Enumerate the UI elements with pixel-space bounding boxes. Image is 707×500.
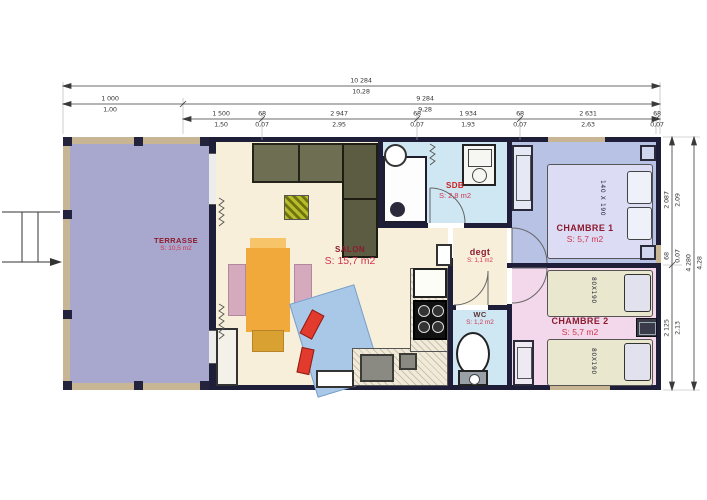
nightstand-top-line xyxy=(639,322,656,335)
toilet-flush-icon xyxy=(469,374,480,385)
burner-icon xyxy=(418,305,430,317)
shower-drain-icon xyxy=(390,202,405,217)
degt-label: degt S: 1,1 m2 xyxy=(445,247,515,266)
degt-area: S: 1,1 m2 xyxy=(445,258,515,266)
salon-window-bay xyxy=(316,370,354,388)
dim-seg-3: 2 947 2,95 xyxy=(330,111,348,128)
chambre1-name: CHAMBRE 1 xyxy=(530,223,640,234)
chambre1-area: S: 5,7 m2 xyxy=(530,234,640,245)
dim-right-seg-2: 68 0,07 xyxy=(664,249,681,263)
terrace-steps xyxy=(2,212,62,266)
sdb-label: SDB S: 2,8 m2 xyxy=(425,181,485,200)
chambre1-label: CHAMBRE 1 S: 5,7 m2 xyxy=(530,223,640,245)
dim-right-seg-3: 2 125 2,13 xyxy=(664,319,681,337)
sdb-area: S: 2,8 m2 xyxy=(425,191,485,200)
washing-machine xyxy=(462,144,496,186)
dining-chair-bottom xyxy=(252,330,284,352)
terrasse-post xyxy=(200,381,209,390)
doormat xyxy=(284,195,309,220)
chambre1-wardrobe xyxy=(512,145,533,211)
dim-steps-width: 1 000 1,00 xyxy=(101,96,119,113)
wc-area: S: 1,2 m2 xyxy=(450,319,510,327)
bed-double-pillow xyxy=(627,171,652,204)
terrasse-floor xyxy=(70,144,209,383)
sdb-name: SDB xyxy=(425,181,485,191)
bed-single-2-size: 80X190 xyxy=(590,348,597,375)
bed-single-2-pillow xyxy=(624,343,651,381)
burner-icon xyxy=(432,305,444,317)
dim-seg-1: 1 500 1,50 xyxy=(212,111,230,128)
wardrobe-shelf-line xyxy=(516,155,531,201)
dim-seg-6: 68 0,07 xyxy=(513,111,527,128)
burner-icon xyxy=(418,321,430,333)
burner-icon xyxy=(432,321,444,333)
terrasse-label: TERRASSE S: 10,5 m2 xyxy=(136,236,216,254)
terrasse-post xyxy=(63,310,72,319)
washbasin xyxy=(384,144,407,167)
chambre2-label: CHAMBRE 2 S: 5,7 m2 xyxy=(525,316,635,338)
chambre1-nightstand xyxy=(640,245,656,260)
kitchen-sink-drainer xyxy=(399,353,417,370)
terrasse-post xyxy=(63,210,72,219)
dim-right-seg-1: 2 087 2,09 xyxy=(664,191,681,209)
dining-table xyxy=(246,248,290,332)
toilet-tank xyxy=(458,370,488,386)
kitchen-tall-unit xyxy=(342,143,378,258)
bed-single-1-size: 80X190 xyxy=(590,277,597,304)
dim-seg-5: 1 934 1,93 xyxy=(459,111,477,128)
shower xyxy=(383,156,427,223)
bed-single-1-pillow xyxy=(624,274,651,312)
chambre1-window xyxy=(548,137,605,142)
terrasse-window-opening xyxy=(209,330,216,364)
dim-seg-7: 2 631 2,63 xyxy=(579,111,597,128)
chambre2-area: S: 5,7 m2 xyxy=(525,327,635,338)
right-wall-window xyxy=(656,245,661,263)
kitchen-sink xyxy=(360,354,394,382)
terrasse-post xyxy=(63,381,72,390)
bed-double-size: 140 X 190 xyxy=(599,180,606,216)
terrasse-post xyxy=(63,137,72,146)
wc-name: WC xyxy=(450,310,510,319)
washing-machine-top xyxy=(468,149,492,167)
degt-floor xyxy=(453,228,507,308)
wall-chambre-divider xyxy=(507,263,661,268)
terrasse-post xyxy=(200,137,209,146)
terrasse-name: TERRASSE xyxy=(136,236,216,245)
dim-seg-4: 68 0,07 xyxy=(410,111,424,128)
salon-label: SALON S: 15,7 m2 xyxy=(305,245,395,268)
terrasse-door-opening xyxy=(209,153,216,205)
chambre2-name: CHAMBRE 2 xyxy=(525,316,635,327)
kitchen-cabinet-divider xyxy=(298,145,300,181)
chambre1-nightstand xyxy=(640,145,656,161)
dining-chair-left xyxy=(228,264,246,316)
wc-label: WC S: 1,2 m2 xyxy=(450,310,510,328)
dim-total-width: 10 284 10,28 xyxy=(350,78,372,95)
wardrobe-shelf-line xyxy=(517,347,532,379)
sdb-door-opening xyxy=(428,223,464,228)
dim-seg-8: 68 0,07 xyxy=(650,111,664,128)
dim-seg-2: 68 0,07 xyxy=(255,111,269,128)
degt-name: degt xyxy=(445,247,515,258)
kitchen-tall-unit-divider xyxy=(344,198,376,200)
terrasse-post xyxy=(134,381,143,390)
terrasse-post xyxy=(134,137,143,146)
stove xyxy=(413,300,447,340)
sideboard xyxy=(216,328,238,386)
salon-name: SALON xyxy=(305,245,395,255)
chambre2-door-opening xyxy=(507,268,512,304)
chambre2-nightstand xyxy=(636,318,657,337)
terrasse-area: S: 10,5 m2 xyxy=(136,245,216,253)
dim-total-height: 4 280 4,28 xyxy=(686,254,703,272)
chambre2-wardrobe xyxy=(513,340,534,386)
kitchen-base-cabinet xyxy=(413,268,447,298)
salon-area: S: 15,7 m2 xyxy=(305,255,395,268)
floor-plan: TERRASSE S: 10,5 m2 SALON S: 15,7 m2 SDB… xyxy=(0,0,707,500)
